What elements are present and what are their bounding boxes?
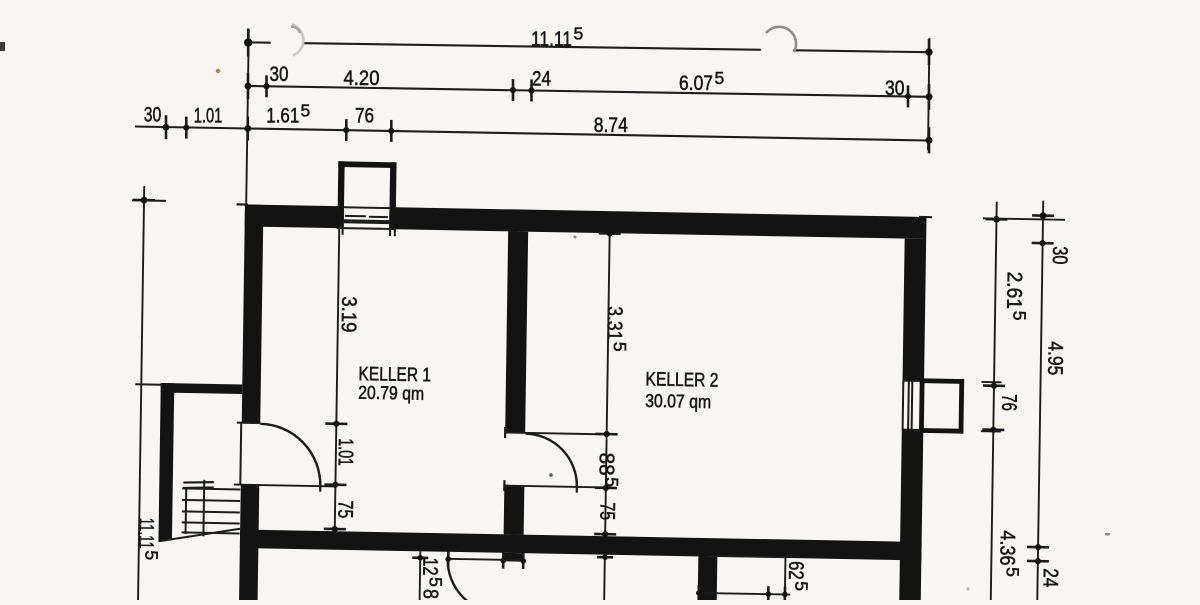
svg-text:11.11: 11.11 <box>134 518 157 549</box>
svg-text:76: 76 <box>355 105 374 128</box>
svg-text:12: 12 <box>418 557 441 575</box>
svg-text:11.11: 11.11 <box>531 28 572 51</box>
svg-text:30: 30 <box>885 77 905 100</box>
svg-text:5: 5 <box>602 477 622 487</box>
svg-text:2.61: 2.61 <box>1002 271 1026 309</box>
svg-text:6.07: 6.07 <box>679 72 713 95</box>
svg-text:1.01: 1.01 <box>334 438 357 466</box>
svg-text:3.19: 3.19 <box>337 296 361 332</box>
svg-text:1.61: 1.61 <box>266 105 299 128</box>
svg-text:1.01: 1.01 <box>194 105 223 128</box>
svg-text:8: 8 <box>419 589 442 599</box>
svg-text:4.95: 4.95 <box>1043 341 1067 375</box>
svg-text:75: 75 <box>333 500 356 518</box>
svg-text:5: 5 <box>791 581 811 591</box>
svg-text:5: 5 <box>610 342 630 352</box>
svg-text:5: 5 <box>301 101 311 121</box>
svg-text:5: 5 <box>574 24 584 44</box>
svg-text:8.74: 8.74 <box>594 114 628 137</box>
svg-text:3.31: 3.31 <box>603 306 627 340</box>
svg-text:5: 5 <box>1009 311 1029 321</box>
svg-text:30: 30 <box>270 63 289 86</box>
svg-text:30.07 qm: 30.07 qm <box>645 390 711 412</box>
svg-text:76: 76 <box>997 394 1020 411</box>
svg-text:5: 5 <box>1003 567 1023 577</box>
svg-text:88: 88 <box>595 452 618 475</box>
svg-text:24: 24 <box>1038 568 1061 588</box>
svg-text:30: 30 <box>1048 246 1071 264</box>
svg-text:5: 5 <box>141 550 161 560</box>
svg-text:75: 75 <box>595 502 618 520</box>
svg-text:30: 30 <box>144 104 162 127</box>
svg-text:4.20: 4.20 <box>344 67 380 90</box>
svg-text:4.36: 4.36 <box>995 530 1019 565</box>
svg-text:KELLER 2: KELLER 2 <box>645 368 718 391</box>
svg-text:5: 5 <box>715 68 725 88</box>
svg-text:62: 62 <box>784 561 807 580</box>
svg-text:20.79 qm: 20.79 qm <box>358 382 424 404</box>
svg-text:24: 24 <box>532 68 551 91</box>
svg-text:5: 5 <box>426 577 446 587</box>
